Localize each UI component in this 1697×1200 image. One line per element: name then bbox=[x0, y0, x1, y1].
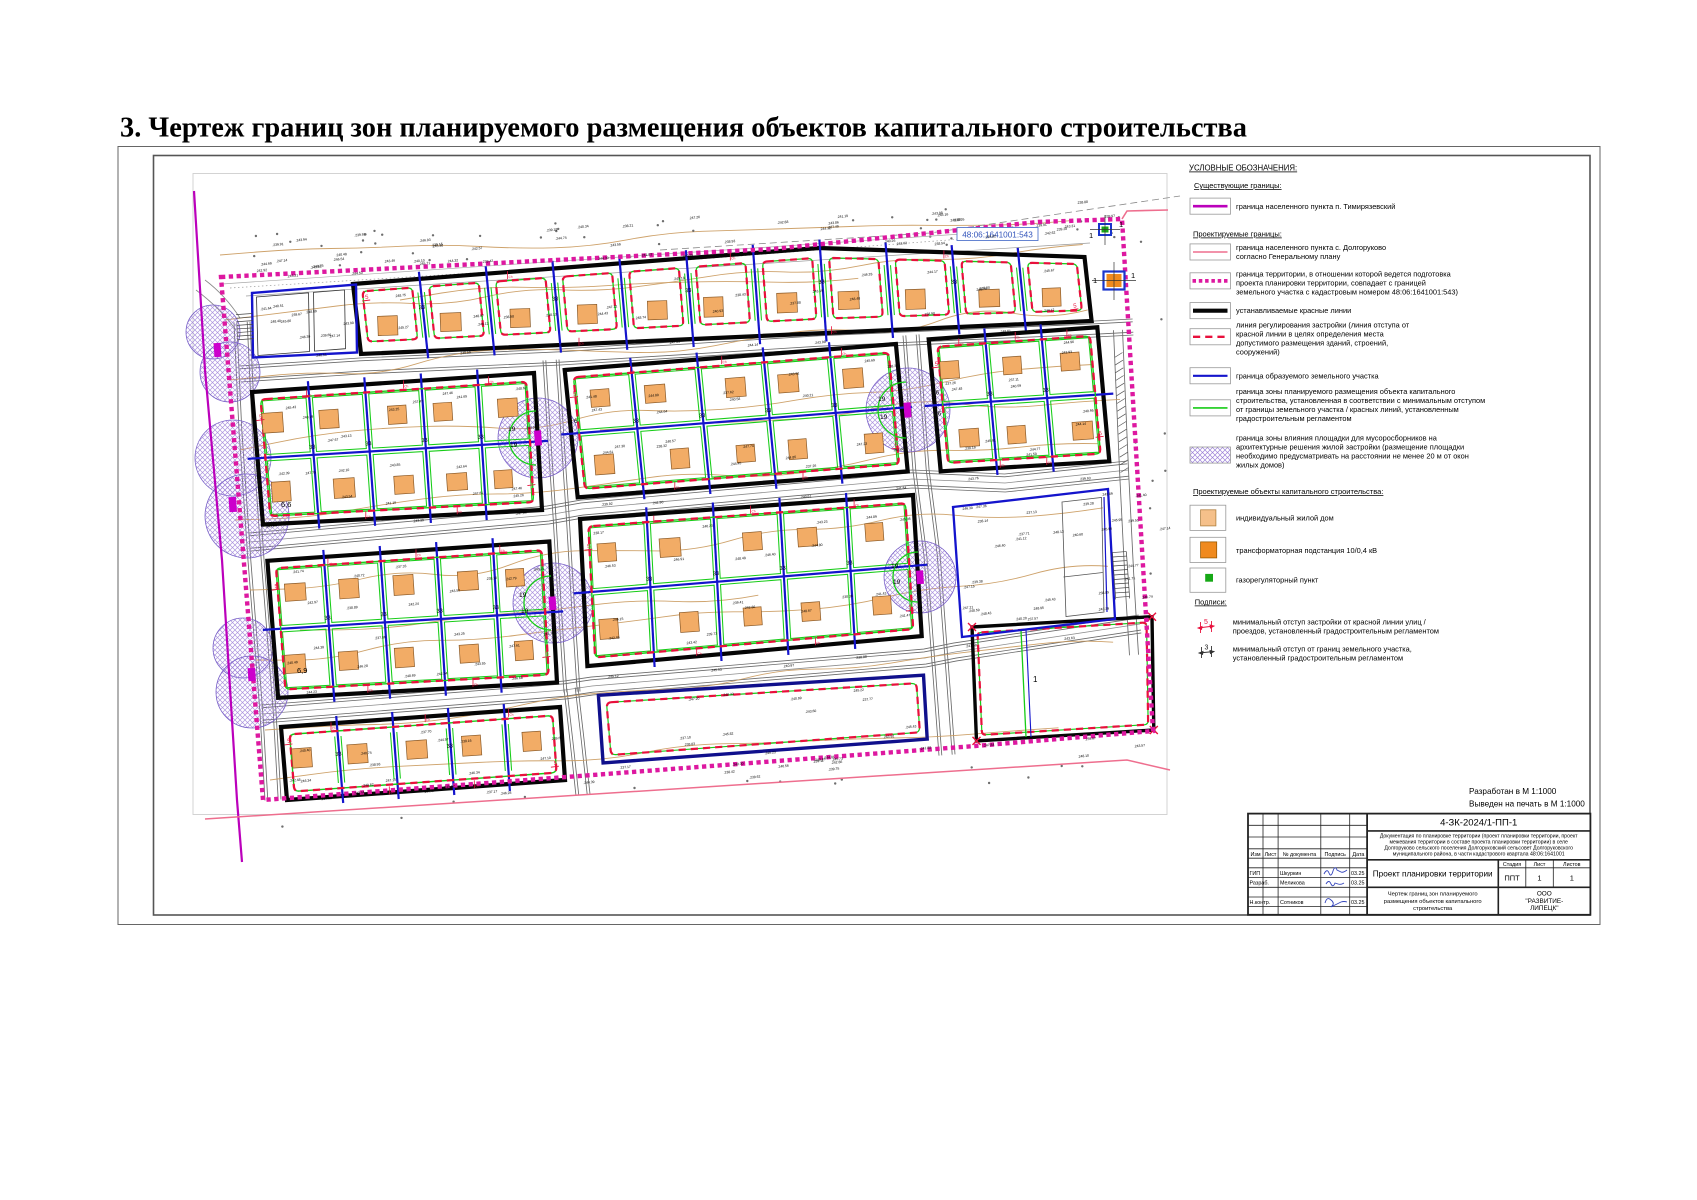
svg-text:33: 33 bbox=[419, 305, 426, 311]
svg-text:33: 33 bbox=[447, 743, 454, 749]
svg-text:1: 1 bbox=[1119, 220, 1123, 229]
svg-text:граница зоны влияния площадки: граница зоны влияния площадки для мусоро… bbox=[1236, 433, 1438, 442]
svg-text:граница территории, в отношени: граница территории, в отношении которой … bbox=[1236, 270, 1452, 279]
svg-text:ЛИПЕЦК": ЛИПЕЦК" bbox=[1530, 905, 1558, 912]
svg-text:Ch: Ch bbox=[804, 476, 809, 480]
svg-text:Ch: Ch bbox=[509, 713, 514, 717]
svg-text:1: 1 bbox=[1033, 675, 1038, 684]
svg-text:Листов: Листов bbox=[1563, 862, 1581, 868]
svg-text:Ch: Ch bbox=[751, 509, 756, 513]
svg-text:33: 33 bbox=[552, 296, 559, 302]
svg-text:Ch: Ch bbox=[329, 562, 334, 566]
svg-text:Ch: Ch bbox=[842, 352, 847, 356]
svg-text:33: 33 bbox=[765, 408, 772, 414]
svg-text:33: 33 bbox=[951, 279, 958, 285]
svg-text:Шкуркин: Шкуркин bbox=[1280, 871, 1301, 877]
svg-text:Разработан в М 1:1000: Разработан в М 1:1000 bbox=[1469, 787, 1557, 796]
svg-text:Ch: Ch bbox=[655, 519, 660, 523]
svg-text:Ch: Ch bbox=[697, 652, 702, 656]
svg-text:19: 19 bbox=[891, 563, 899, 570]
svg-text:земельного участка с кадастров: земельного участка с кадастровым номером… bbox=[1236, 288, 1458, 297]
svg-text:03.25: 03.25 bbox=[1351, 881, 1365, 887]
svg-text:33: 33 bbox=[831, 403, 838, 409]
svg-text:Ch: Ch bbox=[631, 370, 636, 374]
svg-text:УСЛОВНЫЕ ОБОЗНАЧЕНИЯ:: УСЛОВНЫЕ ОБОЗНАЧЕНИЯ: bbox=[1189, 164, 1297, 173]
svg-text:ГИП: ГИП bbox=[1250, 871, 1261, 877]
svg-text:33: 33 bbox=[818, 279, 825, 285]
svg-text:Меликова: Меликова bbox=[1280, 881, 1305, 887]
svg-text:Ch: Ch bbox=[1016, 336, 1021, 340]
svg-text:жилых домов): жилых домов) bbox=[1236, 460, 1284, 469]
svg-text:трансформаторная подстанция 10: трансформаторная подстанция 10/0,4 кВ bbox=[1236, 546, 1377, 555]
svg-text:33: 33 bbox=[436, 608, 443, 614]
svg-text:Ch: Ch bbox=[580, 342, 585, 346]
svg-text:Разраб.: Разраб. bbox=[1250, 881, 1269, 887]
svg-text:граница населенного пункта с.: граница населенного пункта с. Долгоруков… bbox=[1236, 243, 1386, 252]
svg-text:1: 1 bbox=[1093, 276, 1097, 285]
svg-text:Изм: Изм bbox=[1250, 852, 1260, 858]
svg-text:Проект планировки территории: Проект планировки территории bbox=[1373, 870, 1493, 879]
svg-text:проекта планировки территории,: проекта планировки территории, совпадает… bbox=[1236, 279, 1426, 288]
svg-text:граница образуемого земельного: граница образуемого земельного участка bbox=[1236, 371, 1379, 380]
svg-text:48:06:1641001:543: 48:06:1641001:543 bbox=[962, 230, 1033, 239]
svg-text:Ch: Ch bbox=[1068, 333, 1073, 337]
svg-text:19: 19 bbox=[893, 579, 901, 586]
svg-text:Ch: Ch bbox=[676, 486, 681, 490]
svg-text:6,9: 6,9 bbox=[297, 666, 307, 675]
svg-text:5: 5 bbox=[1204, 619, 1208, 626]
svg-text:33: 33 bbox=[365, 441, 372, 447]
svg-text:Ch: Ch bbox=[307, 393, 312, 397]
svg-text:от границы земельного участка: от границы земельного участка / красных … bbox=[1236, 405, 1459, 414]
svg-text:Долгоруково сельского поселени: Долгоруково сельского поселения Долгорук… bbox=[1384, 845, 1573, 852]
svg-text:Проектируемые объекты капиталь: Проектируемые объекты капитального строи… bbox=[1193, 487, 1383, 496]
svg-text:33: 33 bbox=[685, 288, 692, 294]
svg-text:Ch: Ch bbox=[832, 330, 837, 334]
svg-text:19: 19 bbox=[521, 608, 529, 615]
svg-text:Ch: Ch bbox=[1048, 461, 1053, 465]
svg-text:индивидуальный жилой дом: индивидуальный жилой дом bbox=[1236, 514, 1334, 523]
svg-text:33: 33 bbox=[1042, 388, 1049, 394]
svg-text:Сотников: Сотников bbox=[1280, 900, 1304, 906]
svg-text:сооружений): сооружений) bbox=[1236, 347, 1280, 356]
svg-text:Ch: Ch bbox=[458, 510, 463, 514]
svg-text:Дата: Дата bbox=[1352, 852, 1364, 858]
svg-text:03.25: 03.25 bbox=[1351, 871, 1365, 877]
svg-text:ООО: ООО bbox=[1537, 891, 1552, 898]
svg-text:размещения объектов капитально: размещения объектов капитального bbox=[1384, 899, 1482, 905]
svg-text:Ch: Ch bbox=[501, 549, 506, 553]
svg-text:Н.контр.: Н.контр. bbox=[1250, 900, 1271, 906]
svg-text:муниципального района, в части: муниципального района, в части кадастров… bbox=[1393, 851, 1565, 858]
svg-text:межевания территории в составе: межевания территории в составе проекта п… bbox=[1389, 839, 1568, 845]
svg-text:Чертеж границ зон планируемого: Чертеж границ зон планируемого bbox=[1388, 892, 1478, 898]
svg-text:33: 33 bbox=[324, 615, 331, 621]
svg-text:Ch: Ch bbox=[426, 718, 431, 722]
svg-text:ППТ: ППТ bbox=[1504, 874, 1520, 883]
svg-text:19: 19 bbox=[519, 592, 527, 599]
svg-text:Ch: Ch bbox=[475, 784, 480, 788]
svg-text:газорегуляторный пункт: газорегуляторный пункт bbox=[1236, 575, 1319, 584]
svg-text:согласно Генеральному плану: согласно Генеральному плану bbox=[1236, 252, 1341, 261]
svg-text:33: 33 bbox=[986, 391, 993, 397]
svg-text:архитектурные решения жилой за: архитектурные решения жилой застройки (р… bbox=[1236, 442, 1464, 451]
svg-text:Ch: Ch bbox=[489, 380, 494, 384]
svg-text:Лист: Лист bbox=[1534, 862, 1546, 868]
svg-text:Лист: Лист bbox=[1265, 852, 1277, 858]
svg-text:устанавливаемые красные линии: устанавливаемые красные линии bbox=[1236, 306, 1351, 315]
svg-text:3. Чертеж границ зон планируем: 3. Чертеж границ зон планируемого размещ… bbox=[120, 113, 1247, 144]
svg-text:красной линии в целях определе: красной линии в целях определения места bbox=[1236, 329, 1385, 338]
svg-text:33: 33 bbox=[699, 413, 706, 419]
svg-text:Ch: Ch bbox=[731, 256, 736, 260]
svg-text:1: 1 bbox=[1570, 874, 1574, 883]
svg-text:33: 33 bbox=[633, 418, 640, 424]
svg-text:4-ЗК-2024/1-ПП-1: 4-ЗК-2024/1-ПП-1 bbox=[1440, 817, 1517, 828]
svg-text:Подпись: Подпись bbox=[1325, 852, 1347, 858]
svg-text:"РАЗВИТИЕ-: "РАЗВИТИЕ- bbox=[1525, 898, 1563, 905]
svg-text:1: 1 bbox=[1131, 271, 1135, 280]
svg-text:Выведен на печать в М 1:1000: Выведен на печать в М 1:1000 bbox=[1469, 799, 1585, 808]
svg-text:проездов, установленный градос: проездов, установленный градостроительны… bbox=[1233, 627, 1439, 636]
svg-text:Ch: Ch bbox=[332, 726, 337, 730]
svg-text:Ch: Ch bbox=[369, 688, 374, 692]
svg-text:33: 33 bbox=[779, 566, 786, 572]
svg-text:градостроительным регламентом: градостроительным регламентом bbox=[1236, 414, 1352, 423]
svg-text:33: 33 bbox=[380, 612, 387, 618]
svg-text:1: 1 bbox=[1537, 874, 1541, 883]
svg-text:3: 3 bbox=[1205, 645, 1209, 652]
svg-text:Ch: Ch bbox=[390, 790, 395, 794]
svg-text:33: 33 bbox=[646, 576, 653, 582]
svg-text:минимальный отступ от границ з: минимальный отступ от границ земельного … bbox=[1233, 645, 1412, 654]
svg-text:Проектируемые границы:: Проектируемые границы: bbox=[1193, 230, 1282, 239]
svg-text:Ch: Ch bbox=[474, 683, 479, 687]
svg-text:граница зоны планируемого разм: граница зоны планируемого размещения объ… bbox=[1236, 387, 1455, 396]
svg-text:33: 33 bbox=[477, 434, 484, 440]
svg-text:строительства: строительства bbox=[1413, 906, 1453, 912]
svg-text:33: 33 bbox=[335, 751, 342, 757]
svg-text:19: 19 bbox=[880, 414, 888, 421]
svg-text:33: 33 bbox=[421, 438, 428, 444]
svg-text:33: 33 bbox=[309, 444, 316, 450]
svg-text:строительства, установленная в: строительства, установленная в соответст… bbox=[1236, 396, 1485, 405]
svg-text:установленный градостроительны: установленный градостроительным регламен… bbox=[1233, 654, 1403, 663]
svg-text:необходимо предусматривать на: необходимо предусматривать на расстоянии… bbox=[1236, 451, 1469, 460]
svg-text:33: 33 bbox=[493, 605, 500, 611]
svg-text:Стадия: Стадия bbox=[1503, 862, 1521, 868]
svg-text:Существующие границы:: Существующие границы: bbox=[1194, 181, 1282, 190]
svg-text:03.25: 03.25 bbox=[1351, 900, 1365, 906]
svg-text:Ch: Ch bbox=[1001, 464, 1006, 468]
svg-text:Документация по планировке тер: Документация по планировке территории (п… bbox=[1380, 833, 1578, 839]
svg-text:19: 19 bbox=[878, 396, 886, 403]
svg-text:Ch: Ch bbox=[367, 515, 372, 519]
svg-text:допустимого размещения зданий,: допустимого размещения зданий, строений, bbox=[1236, 338, 1388, 347]
svg-text:33: 33 bbox=[713, 571, 720, 577]
svg-text:№ документа: № документа bbox=[1283, 852, 1317, 858]
svg-text:1: 1 bbox=[1089, 231, 1093, 240]
svg-text:Ch: Ch bbox=[508, 275, 513, 279]
svg-text:19: 19 bbox=[508, 426, 516, 433]
svg-text:Подписи:: Подписи: bbox=[1195, 598, 1227, 607]
svg-text:линия регулирования застройки: линия регулирования застройки (линия отс… bbox=[1236, 320, 1410, 329]
svg-text:Ch: Ch bbox=[404, 384, 409, 388]
svg-text:Ch: Ch bbox=[855, 503, 860, 507]
svg-text:Ch: Ch bbox=[417, 553, 422, 557]
svg-text:6,6: 6,6 bbox=[281, 500, 291, 509]
svg-text:Ch: Ch bbox=[722, 360, 727, 364]
svg-text:Ch: Ch bbox=[816, 641, 821, 645]
svg-text:19: 19 bbox=[510, 442, 518, 449]
svg-text:минимальный отступ застройки о: минимальный отступ застройки от красной … bbox=[1233, 618, 1427, 627]
svg-text:33: 33 bbox=[846, 560, 853, 566]
svg-text:граница населенного пункта п.: граница населенного пункта п. Тимирязевс… bbox=[1236, 202, 1395, 211]
svg-text:Ch: Ch bbox=[960, 342, 965, 346]
svg-text:Ch: Ch bbox=[945, 254, 950, 258]
